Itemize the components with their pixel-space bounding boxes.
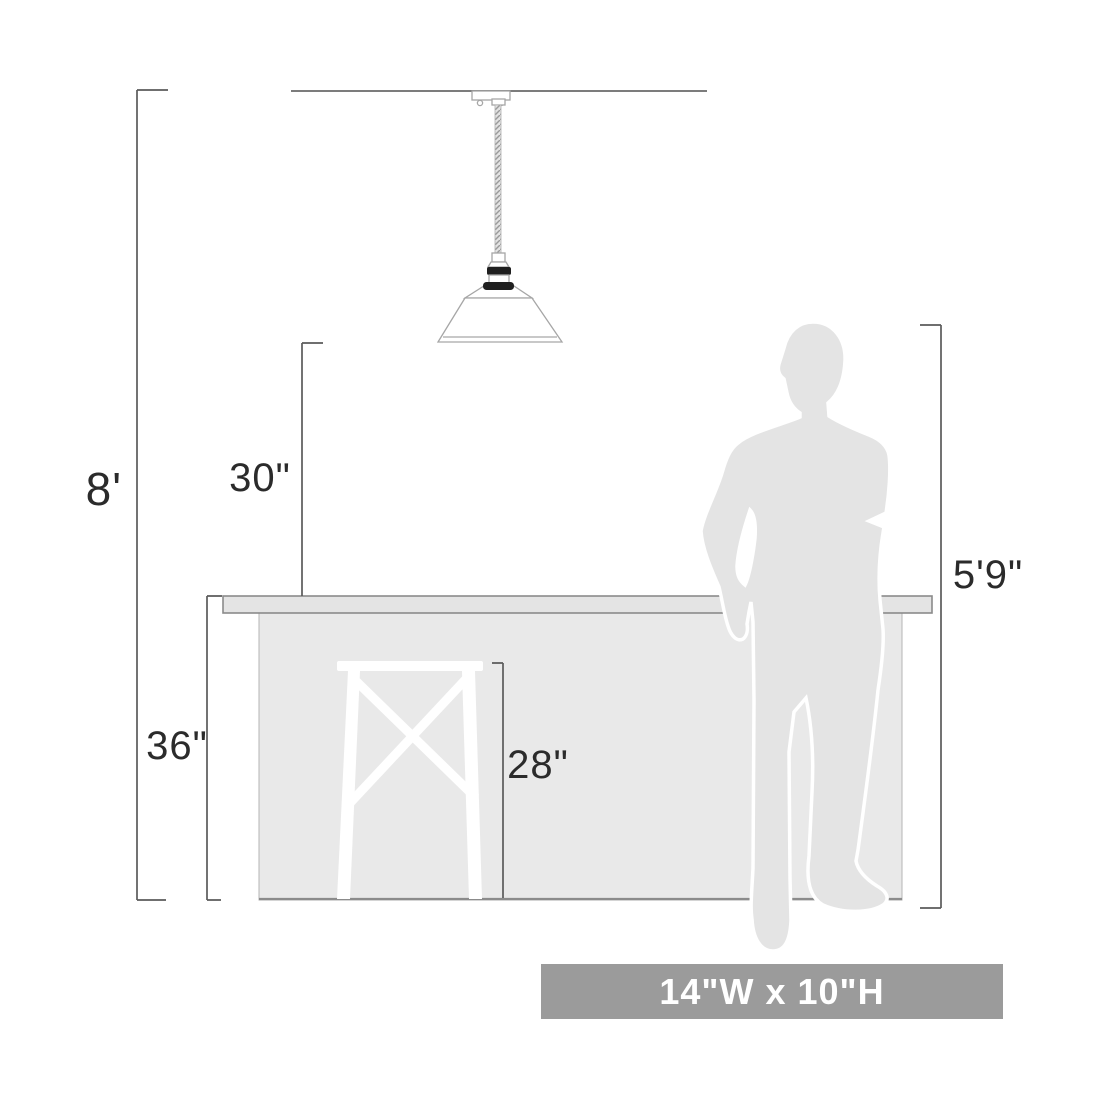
socket-neck (492, 253, 505, 262)
label-ceiling-height: 8' (70, 462, 122, 516)
dim-line-8ft (137, 90, 168, 900)
pendant-light-drawing (438, 91, 562, 342)
dim-line-36in (207, 596, 222, 900)
label-stool-height: 28" (506, 743, 570, 788)
socket-band-upper (487, 267, 511, 275)
socket-collar (488, 262, 509, 267)
label-person-height: 5'9" (948, 553, 1028, 598)
socket-band-lower (483, 282, 514, 290)
dim-line-5ft9 (920, 325, 941, 908)
size-banner-text: 14"W x 10"H (659, 971, 884, 1013)
label-fixture-clearance: 30" (225, 456, 295, 501)
size-banner: 14"W x 10"H (541, 964, 1003, 1019)
diagram-canvas: 8' 30" 36" 28" 5'9" 14"W x 10"H (0, 0, 1096, 1096)
canopy-screw-left (477, 100, 482, 105)
socket-body (489, 275, 509, 283)
pendant-cord (495, 105, 501, 253)
canopy-stem (492, 99, 505, 105)
dimension-diagram-art (0, 0, 1096, 1096)
stool-seat (337, 661, 483, 671)
label-counter-height: 36" (145, 724, 209, 769)
shade-skirt (438, 298, 562, 342)
dim-line-30in (302, 343, 323, 596)
